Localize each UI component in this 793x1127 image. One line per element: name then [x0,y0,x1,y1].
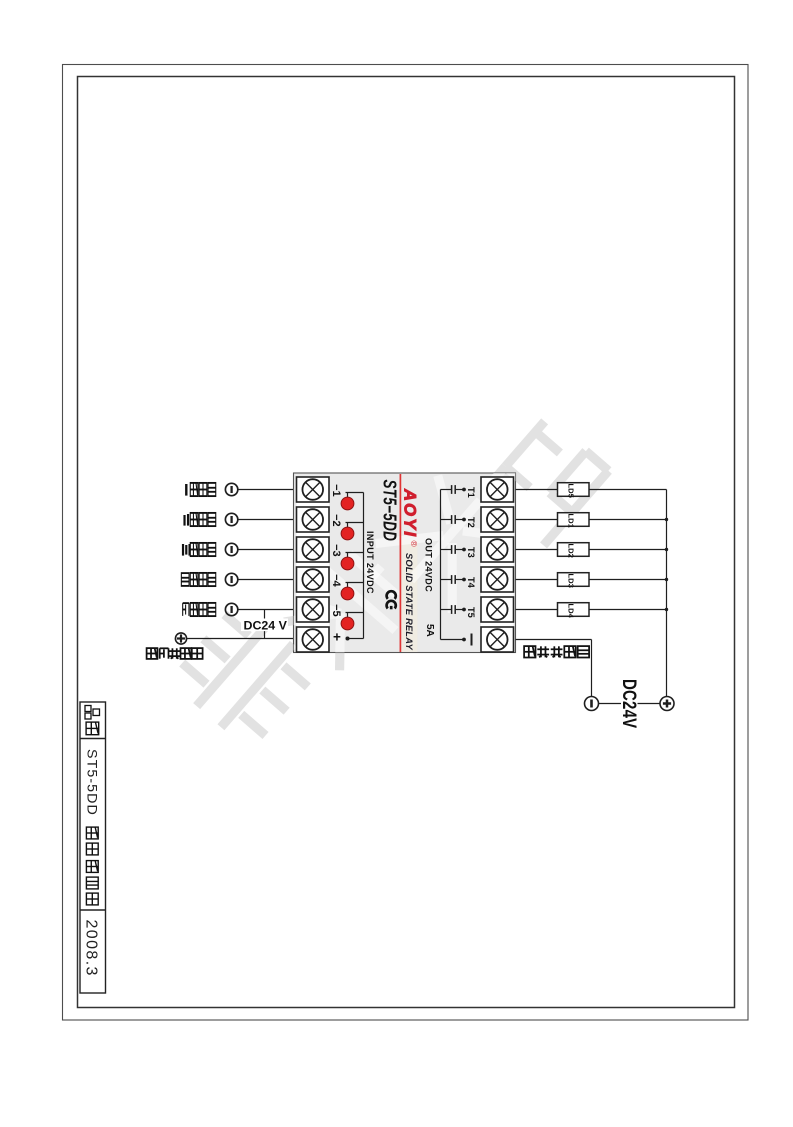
svg-text:−2: −2 [330,514,342,527]
svg-text:INPUT 24VDC: INPUT 24VDC [365,531,375,594]
svg-text:T4: T4 [466,577,476,589]
svg-text:LD5: LD5 [566,484,575,499]
svg-text:SOLID STATE RELAY: SOLID STATE RELAY [404,553,414,650]
svg-text:−1: −1 [330,484,342,497]
svg-text:AOYI: AOYI [401,488,419,538]
svg-text:T2: T2 [466,517,476,528]
svg-text:−3: −3 [330,544,342,557]
svg-text:OUT 24VDC: OUT 24VDC [424,538,434,592]
svg-text:2008.3: 2008.3 [82,920,99,977]
svg-text:T3: T3 [466,547,476,558]
svg-text:T5: T5 [466,607,476,618]
svg-text:DC24 V: DC24 V [244,618,288,632]
svg-text:5A: 5A [424,624,435,637]
svg-text:+: + [333,630,341,645]
svg-text:LD1: LD1 [566,514,575,529]
svg-text:ST5-5DD: ST5-5DD [83,749,99,816]
svg-text:LD4: LD4 [566,604,575,619]
svg-text:LD2: LD2 [566,544,575,558]
svg-text:ST5−5DD: ST5−5DD [379,480,400,542]
svg-text:LD3: LD3 [566,574,575,588]
svg-text:®: ® [409,541,419,548]
svg-text:−5: −5 [330,604,342,617]
svg-text:T1: T1 [466,487,476,498]
svg-text:−4: −4 [330,574,342,587]
